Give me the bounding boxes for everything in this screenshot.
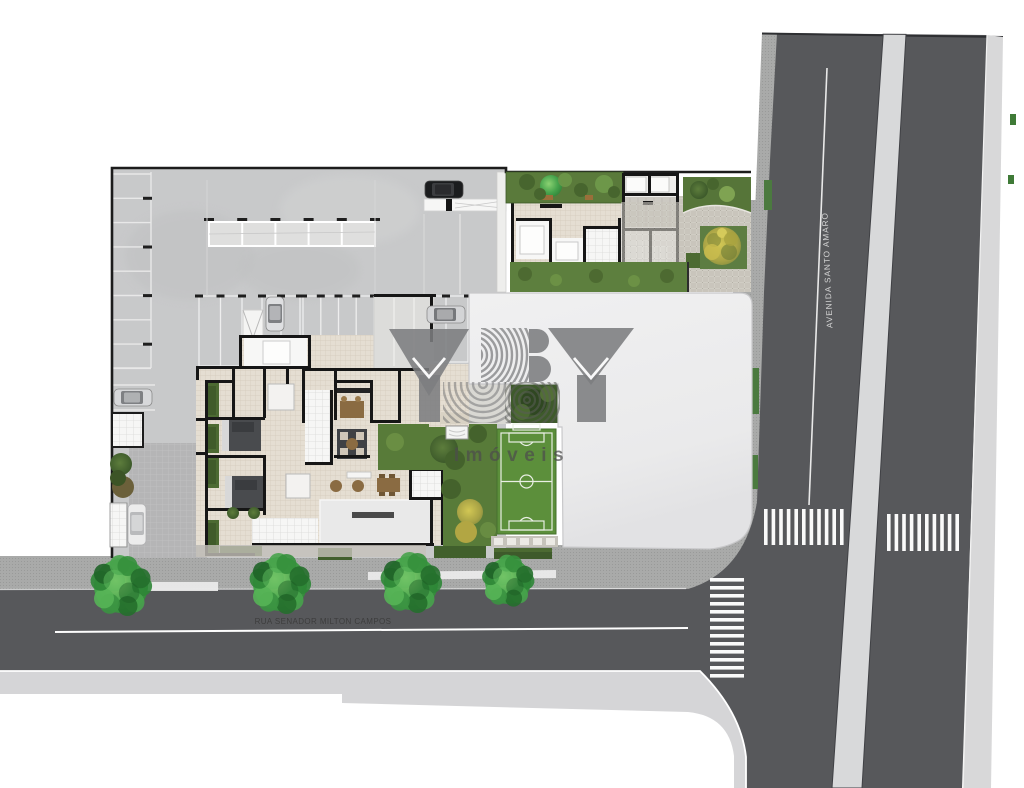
svg-text:Imóveis: Imóveis <box>454 445 570 466</box>
svg-text:RUA SENADOR MILTON CAMPOS: RUA SENADOR MILTON CAMPOS <box>255 617 392 626</box>
